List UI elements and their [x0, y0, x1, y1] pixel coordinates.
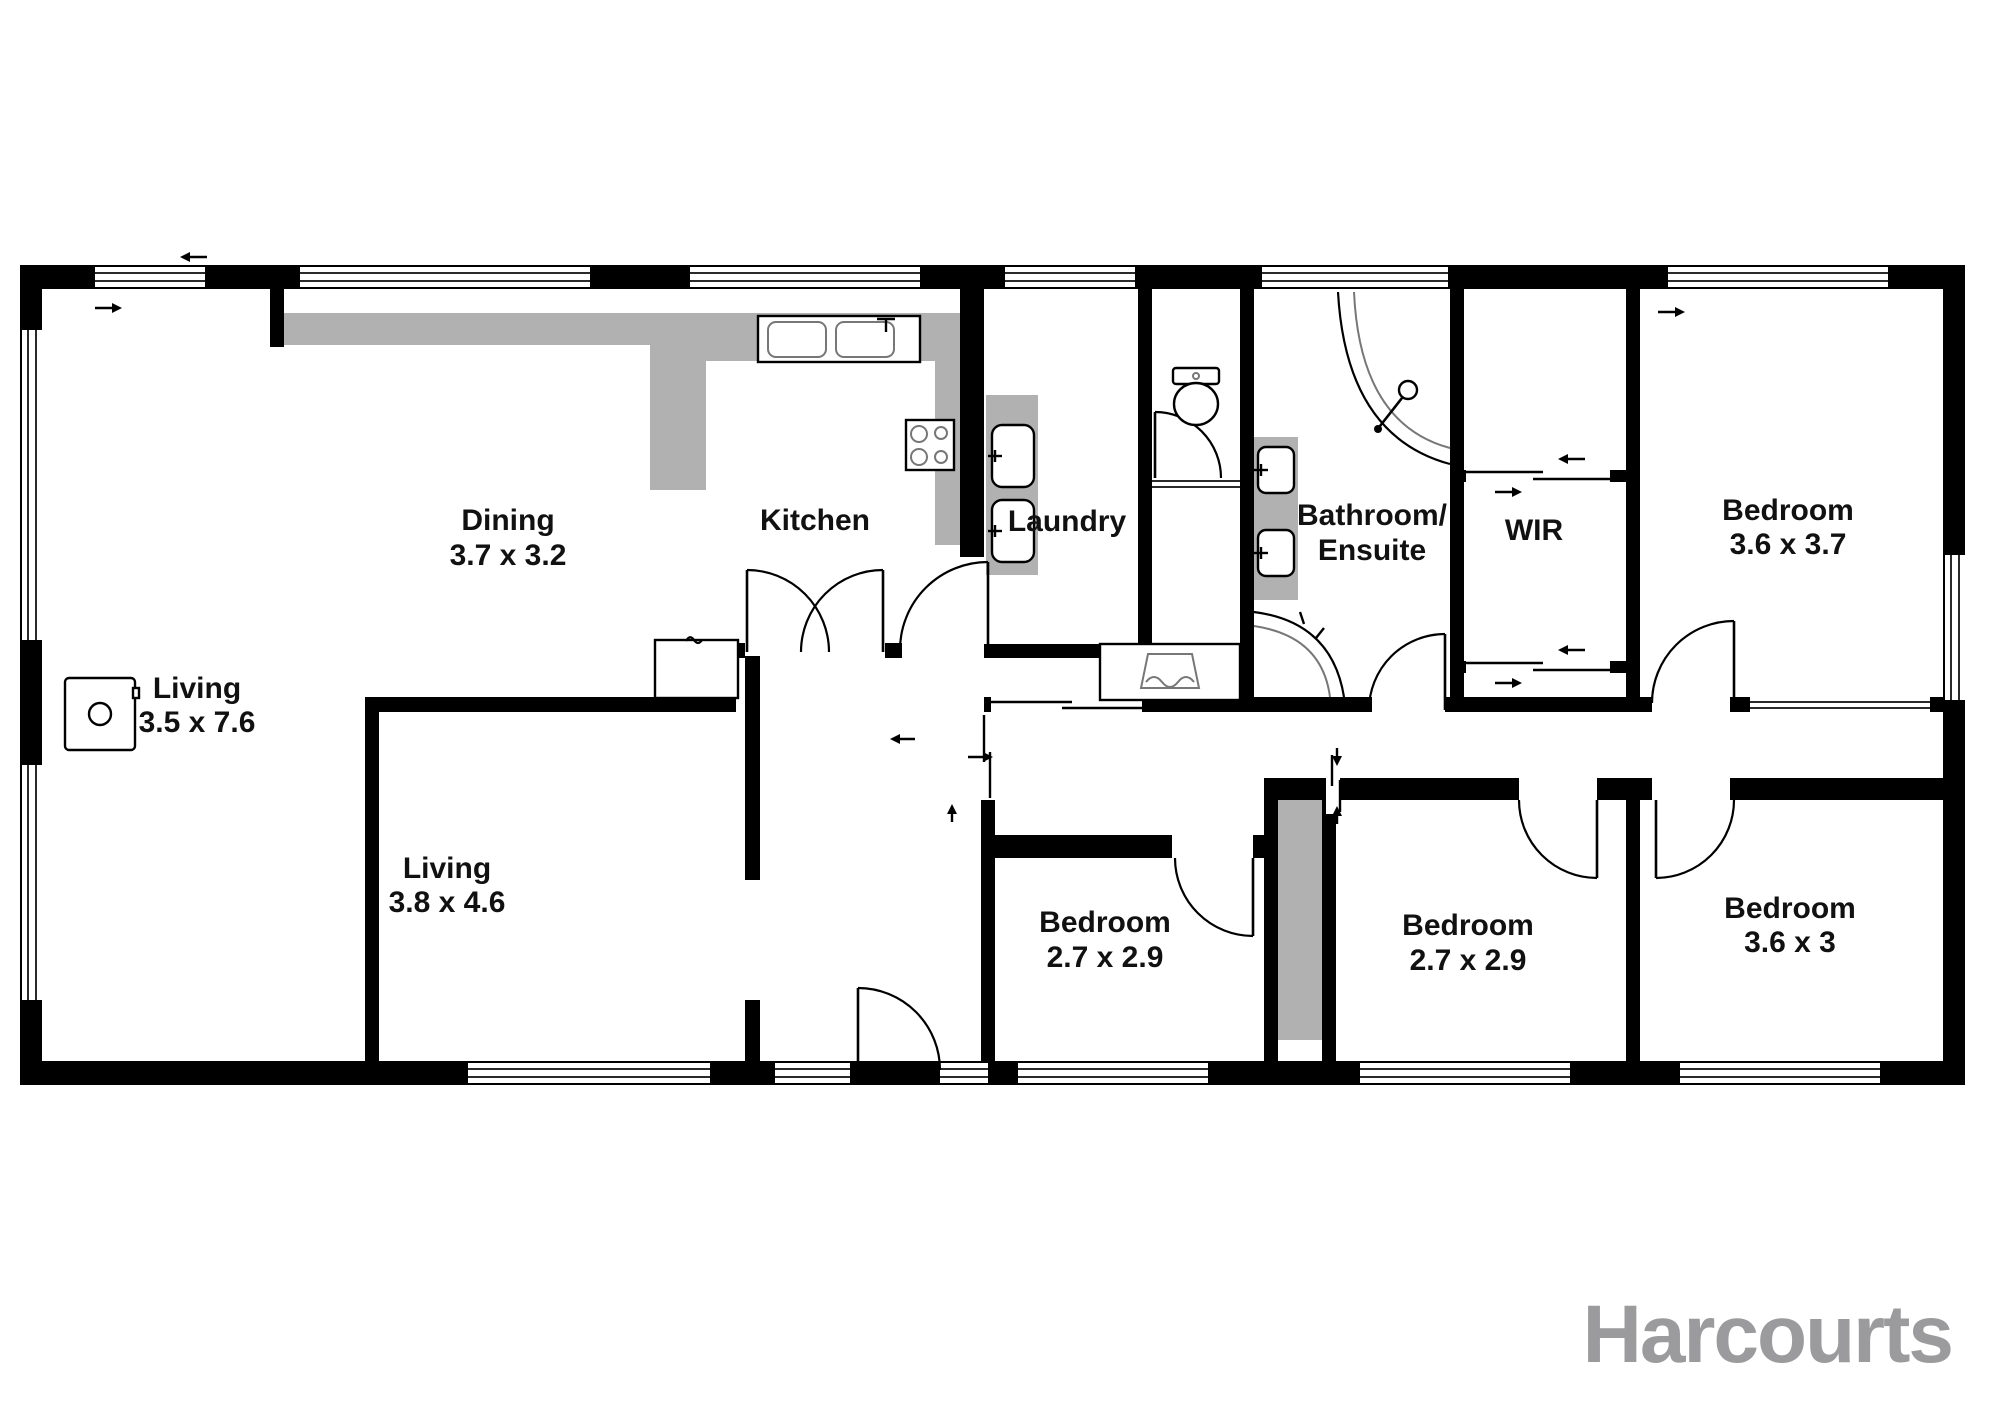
arrow-right-icon: [95, 303, 122, 313]
door-bedroom-bottom-right: [1656, 800, 1734, 878]
wall-segment: [270, 289, 284, 347]
window: [95, 267, 205, 287]
wall-living2-left: [365, 697, 379, 1061]
room-label: Living: [153, 672, 241, 705]
room-label: Bedroom: [1722, 494, 1854, 527]
arrow-left-icon: [180, 252, 207, 262]
corner-shower-icon: [1338, 292, 1450, 464]
wall-wc-bathroom: [1240, 289, 1254, 712]
arrow-left-icon: [1558, 645, 1585, 655]
wall-linen-north: [984, 644, 1100, 658]
room-bathroom-ensuite: Bathroom/ Ensuite: [1297, 499, 1448, 567]
wall-wir-bedroom: [1626, 289, 1640, 712]
cooktop-icon: [906, 420, 954, 470]
floor-plan-drawing: Living 3.5 x 7.6 Dining 3.7 x 3.2 Kitche…: [0, 0, 2000, 1415]
wall-kitchen-laundry: [960, 289, 984, 557]
french-doors-dining: [747, 570, 883, 652]
room-label: Laundry: [1008, 505, 1127, 538]
wall-bedroomA-right: [1264, 800, 1278, 1061]
arrow-right-icon: [1495, 678, 1522, 688]
window: [1018, 1063, 1208, 1083]
wall-laundry-wc: [1138, 289, 1152, 644]
wall-robe: [1322, 778, 1336, 1061]
room-label: Dining: [461, 504, 554, 537]
window: [22, 765, 42, 1000]
window: [22, 330, 42, 640]
window: [940, 1063, 988, 1083]
door-bedroom-top-right: [1652, 621, 1734, 703]
floor-plan-page: Living 3.5 x 7.6 Dining 3.7 x 3.2 Kitche…: [0, 0, 2000, 1415]
wall-segment: [1450, 661, 1466, 673]
wall-bedroomA-top: [995, 835, 1172, 858]
room-kitchen: Kitchen: [760, 504, 870, 537]
arrow-left-icon: [890, 734, 915, 744]
arrow-left-icon: [1558, 454, 1585, 464]
window: [775, 1063, 850, 1083]
window: [468, 1063, 710, 1083]
room-dims: 2.7 x 2.9: [1047, 941, 1164, 974]
window: [300, 267, 590, 287]
bedroom-robe: [1278, 800, 1322, 1040]
window: [690, 267, 920, 287]
room-label: Bedroom: [1724, 892, 1856, 925]
wood-stove-icon: [65, 678, 139, 750]
window: [1668, 267, 1888, 287]
arrow-up-icon: [947, 804, 957, 822]
window: [1945, 555, 1965, 700]
room-dining: Dining 3.7 x 3.2: [450, 504, 567, 572]
wall-living2-right-lower: [745, 1000, 760, 1061]
door-laundry: [900, 562, 988, 650]
door-bedroom-bottom-left: [1175, 858, 1253, 936]
room-bedroom-bottom-right: Bedroom 3.6 x 3: [1724, 892, 1856, 959]
kitchen-sink-icon: [758, 316, 920, 362]
room-label: Kitchen: [760, 504, 870, 537]
wall-bedroomA-left: [981, 800, 995, 1061]
room-label: Bedroom: [1402, 909, 1534, 942]
room-label: Living: [403, 852, 491, 885]
window: [1750, 699, 1930, 710]
wall-segment: [1610, 470, 1626, 482]
window: [1680, 1063, 1880, 1083]
room-dims: 3.6 x 3: [1744, 926, 1836, 959]
arrow-right-icon: [1495, 487, 1522, 497]
room-bedroom-bottom-middle: Bedroom 2.7 x 2.9: [1402, 909, 1534, 977]
door-bathroom: [1369, 634, 1445, 710]
hall-cabinet-icon: [655, 637, 738, 698]
arrow-right-icon: [1658, 307, 1685, 317]
room-dims: 3.8 x 4.6: [389, 886, 506, 919]
wall-corridor-south-right: [1730, 778, 1965, 800]
room-dims: 3.5 x 7.6: [139, 706, 256, 739]
room-laundry: Laundry: [1008, 505, 1127, 538]
wall-bathroom-bottom-left: [1240, 697, 1372, 712]
room-label-line2: Ensuite: [1318, 534, 1426, 567]
wall-bedroomB-C: [1626, 800, 1640, 1061]
wall-corridor-south-left: [1264, 778, 1519, 800]
sliding-door-wir-top: [1466, 468, 1610, 484]
dining-bench: [283, 313, 663, 345]
room-label: WIR: [1505, 514, 1564, 547]
room-label: Bathroom/: [1297, 499, 1448, 532]
sliding-door-wir-bottom: [1466, 659, 1610, 675]
room-label: Bedroom: [1039, 906, 1171, 939]
wall-dining-living2: [365, 697, 736, 712]
wall-bathroom-wir-bottom: [1445, 697, 1652, 712]
wall-segment: [1597, 778, 1652, 800]
wall-segment: [1450, 470, 1466, 482]
room-bedroom-top-right: Bedroom 3.6 x 3.7: [1722, 494, 1854, 561]
window: [1360, 1063, 1570, 1083]
room-living-main: Living 3.5 x 7.6: [139, 672, 256, 739]
room-dims: 2.7 x 2.9: [1410, 944, 1527, 977]
harcourts-logo: Harcourts: [1583, 1289, 1952, 1380]
room-dims: 3.6 x 3.7: [1730, 528, 1847, 561]
kitchen-bench-left-leg: [650, 345, 706, 490]
door-front-entry: [858, 988, 940, 1070]
window: [1262, 267, 1448, 287]
room-living-second: Living 3.8 x 4.6: [389, 852, 506, 919]
door-bedroom-bottom-middle: [1519, 800, 1597, 878]
wall-living2-right-upper: [745, 656, 760, 880]
linen-cupboard-icon: [1100, 644, 1240, 700]
wall-bottom: [20, 1061, 1965, 1085]
room-wir: WIR: [1505, 514, 1564, 547]
wall-bathroom-wir: [1450, 289, 1464, 712]
window: [1005, 267, 1135, 287]
wall-segment: [984, 697, 991, 712]
toilet-icon: [1173, 368, 1219, 425]
wall-segment: [1610, 661, 1626, 673]
room-bedroom-bottom-left: Bedroom 2.7 x 2.9: [1039, 906, 1171, 974]
room-dims: 3.7 x 3.2: [450, 539, 567, 572]
corner-bath-icon: [1254, 612, 1344, 697]
